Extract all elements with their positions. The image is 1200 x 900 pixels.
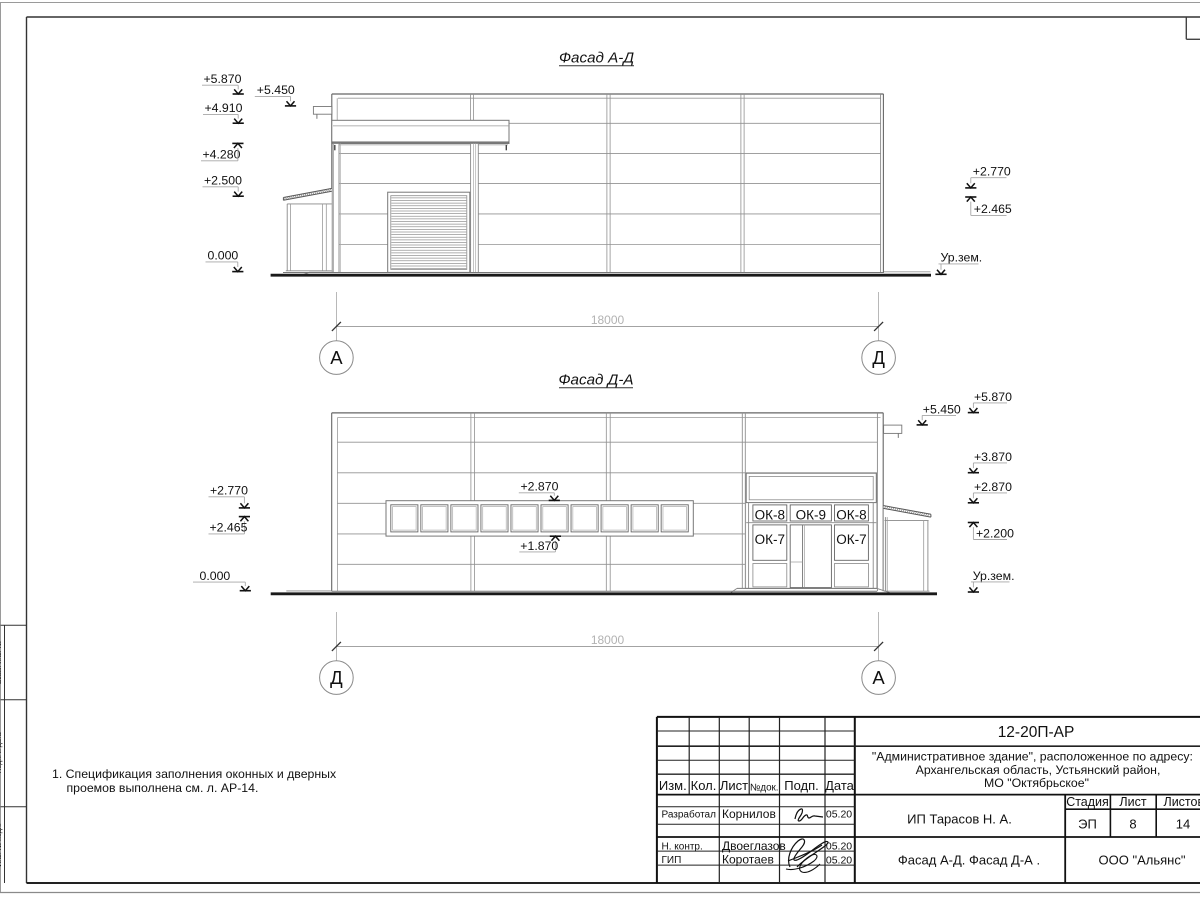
svg-text:Коротаев: Коротаев: [722, 852, 774, 866]
svg-text:ОК-8: ОК-8: [836, 507, 866, 522]
svg-text:А: А: [330, 347, 343, 368]
svg-text:14: 14: [1176, 817, 1190, 832]
svg-text:Изм.: Изм.: [659, 778, 687, 793]
svg-text:Лист: Лист: [1119, 795, 1146, 809]
svg-text:05.20: 05.20: [826, 841, 852, 853]
svg-text:+3.870: +3.870: [974, 450, 1012, 464]
svg-text:Д: Д: [872, 347, 885, 368]
svg-text:ОК-7: ОК-7: [755, 532, 785, 547]
svg-text:Ур.зем.: Ур.зем.: [941, 251, 983, 265]
svg-text:Листов: Листов: [1164, 795, 1200, 809]
svg-text:+2.500: +2.500: [204, 174, 242, 188]
svg-text:Д: Д: [330, 667, 343, 688]
svg-text:ЭП: ЭП: [1078, 817, 1097, 832]
svg-text:+2.465: +2.465: [210, 521, 248, 535]
svg-text:Инв. № подл.: Инв. № подл.: [0, 823, 3, 867]
svg-text:+2.770: +2.770: [210, 484, 248, 498]
svg-text:А: А: [872, 667, 885, 688]
svg-text:Кол.: Кол.: [691, 778, 717, 793]
svg-text:+2.770: +2.770: [973, 165, 1011, 179]
svg-text:+2.200: +2.200: [976, 526, 1014, 540]
svg-text:ГИП: ГИП: [662, 855, 682, 866]
svg-text:Взам. инв. №: Взам. инв. №: [0, 641, 3, 684]
svg-text:+5.870: +5.870: [204, 72, 242, 86]
svg-text:+5.450: +5.450: [257, 83, 295, 97]
svg-text:Двоеглазов: Двоеглазов: [722, 839, 786, 853]
svg-text:ИП Тарасов Н. А.: ИП Тарасов Н. А.: [907, 811, 1012, 826]
svg-text:+4.910: +4.910: [205, 101, 243, 115]
svg-text:12-20П-АР: 12-20П-АР: [998, 724, 1075, 741]
svg-text:Дата: Дата: [825, 778, 855, 793]
svg-text:МО "Октябрьское": МО "Октябрьское": [984, 776, 1089, 790]
svg-text:+2.870: +2.870: [974, 480, 1012, 494]
svg-text:+5.450: +5.450: [923, 402, 961, 416]
svg-text:"Административное здание", рас: "Административное здание", расположенное…: [872, 750, 1193, 764]
svg-text:+1.870: +1.870: [520, 539, 558, 553]
svg-text:Корнилов: Корнилов: [722, 807, 776, 821]
svg-text:№док.: №док.: [750, 783, 779, 794]
svg-text:Подп. и дата: Подп. и дата: [0, 732, 3, 773]
svg-text:05.20: 05.20: [826, 809, 852, 821]
svg-text:Фасад А-Д: Фасад А-Д: [559, 50, 634, 67]
svg-text:18000: 18000: [591, 633, 625, 647]
svg-text:+4.280: +4.280: [203, 148, 241, 162]
svg-text:ООО "Альянс": ООО "Альянс": [1099, 853, 1186, 868]
svg-text:1. Спецификация заполнения око: 1. Спецификация заполнения оконных и две…: [52, 767, 337, 781]
svg-text:Ур.зем.: Ур.зем.: [973, 569, 1015, 583]
svg-text:+5.870: +5.870: [974, 390, 1012, 404]
svg-text:Подп.: Подп.: [784, 778, 819, 793]
svg-text:0.000: 0.000: [208, 249, 239, 263]
svg-text:Н. контр.: Н. контр.: [662, 842, 703, 853]
svg-text:05.20: 05.20: [826, 854, 852, 866]
svg-text:ОК-8: ОК-8: [755, 507, 785, 522]
svg-text:Разработал: Разработал: [662, 809, 717, 821]
svg-text:Стадия: Стадия: [1066, 795, 1109, 809]
svg-text:ОК-7: ОК-7: [836, 532, 866, 547]
svg-text:Архангельская область, Устьянс: Архангельская область, Устьянский район,: [916, 763, 1161, 777]
svg-text:8: 8: [1129, 817, 1136, 832]
svg-text:Фасад Д-А: Фасад Д-А: [558, 372, 633, 389]
svg-text:0.000: 0.000: [200, 569, 231, 583]
svg-text:+2.870: +2.870: [521, 480, 559, 494]
svg-text:+2.465: +2.465: [974, 202, 1012, 216]
svg-text:Лист: Лист: [720, 778, 748, 793]
svg-text:Фасад А-Д. Фасад Д-А .: Фасад А-Д. Фасад Д-А .: [898, 853, 1040, 868]
svg-text:проемов выполнена см. л. АР-14: проемов выполнена см. л. АР-14.: [67, 781, 259, 795]
svg-text:18000: 18000: [591, 313, 625, 327]
svg-text:ОК-9: ОК-9: [796, 507, 826, 522]
